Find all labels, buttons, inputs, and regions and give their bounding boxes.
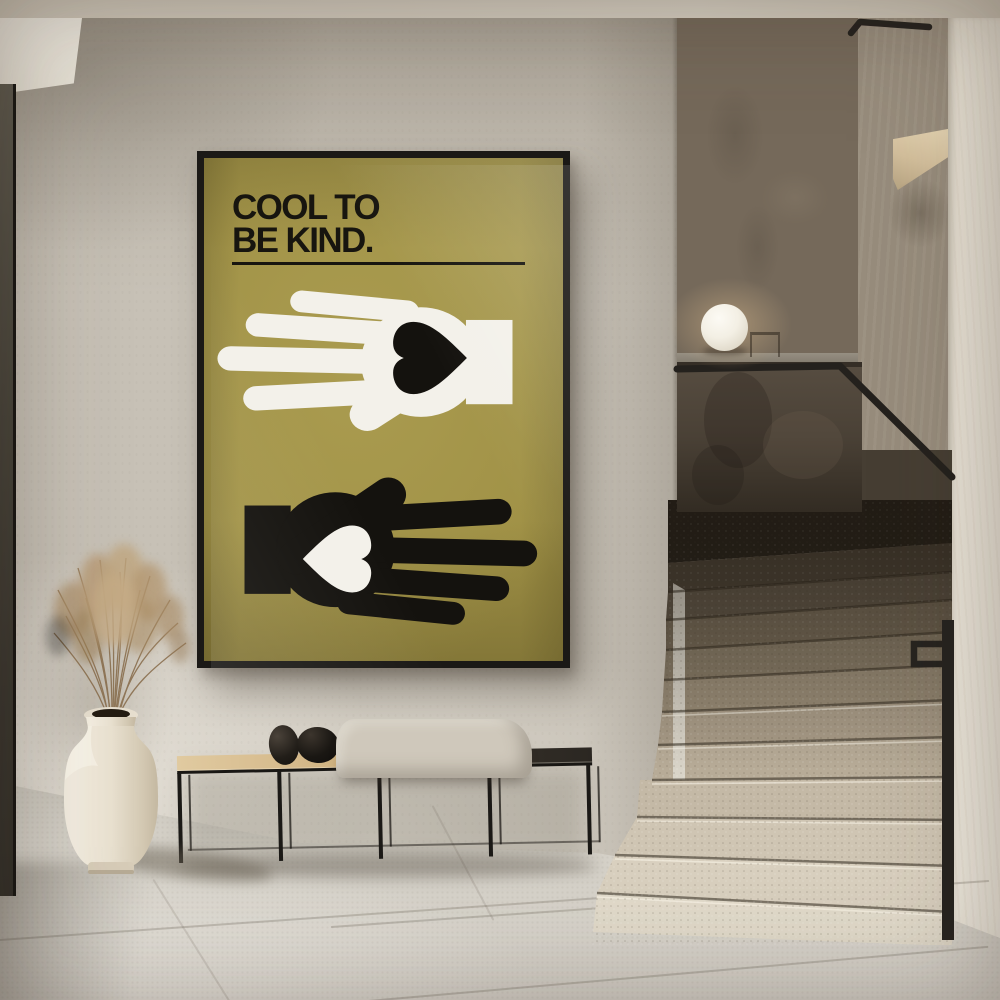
bench-back-leg: [388, 771, 392, 847]
bench-leg: [487, 766, 492, 856]
poster-title-line1: COOL TO: [232, 192, 452, 225]
door-frame: [0, 84, 14, 896]
staircase: [588, 350, 958, 945]
bench-leg: [586, 764, 591, 854]
grass-plumes: [46, 544, 190, 663]
poster-frame: COOL TO BE KIND.: [197, 151, 570, 668]
poster-title-line2: BE KIND.: [232, 225, 452, 258]
poster-underline: [232, 262, 525, 265]
white-hand-illustration: [231, 301, 512, 416]
bench-back-leg: [597, 766, 601, 842]
sphere-lamp: [701, 304, 748, 351]
vase: [64, 707, 158, 874]
upper-handrail: [845, 14, 937, 40]
interior-scene: COOL TO BE KIND.: [0, 0, 1000, 1000]
bench-back-leg: [498, 768, 502, 844]
bench-leg: [377, 769, 382, 859]
folded-blanket: [336, 719, 532, 778]
bench-back-leg: [288, 773, 292, 849]
poster: COOL TO BE KIND.: [204, 158, 563, 661]
stair-parapet: [677, 362, 862, 512]
stair-upper-shadow: [592, 500, 954, 800]
stairwell-back-wall-texture: [690, 60, 840, 310]
bench-back-rail: [188, 840, 600, 851]
lamp-stand: [750, 332, 780, 357]
bench-leg: [277, 771, 282, 861]
vase-with-dried-grass: [28, 528, 212, 876]
door-frame-edge: [13, 84, 16, 896]
black-hand-illustration: [245, 493, 524, 614]
floor-shadow: [0, 862, 200, 1000]
handrail-post: [942, 620, 954, 940]
poster-title: COOL TO BE KIND.: [232, 192, 452, 257]
soffit: [0, 18, 82, 94]
wall-niche-shadow: [888, 178, 952, 248]
